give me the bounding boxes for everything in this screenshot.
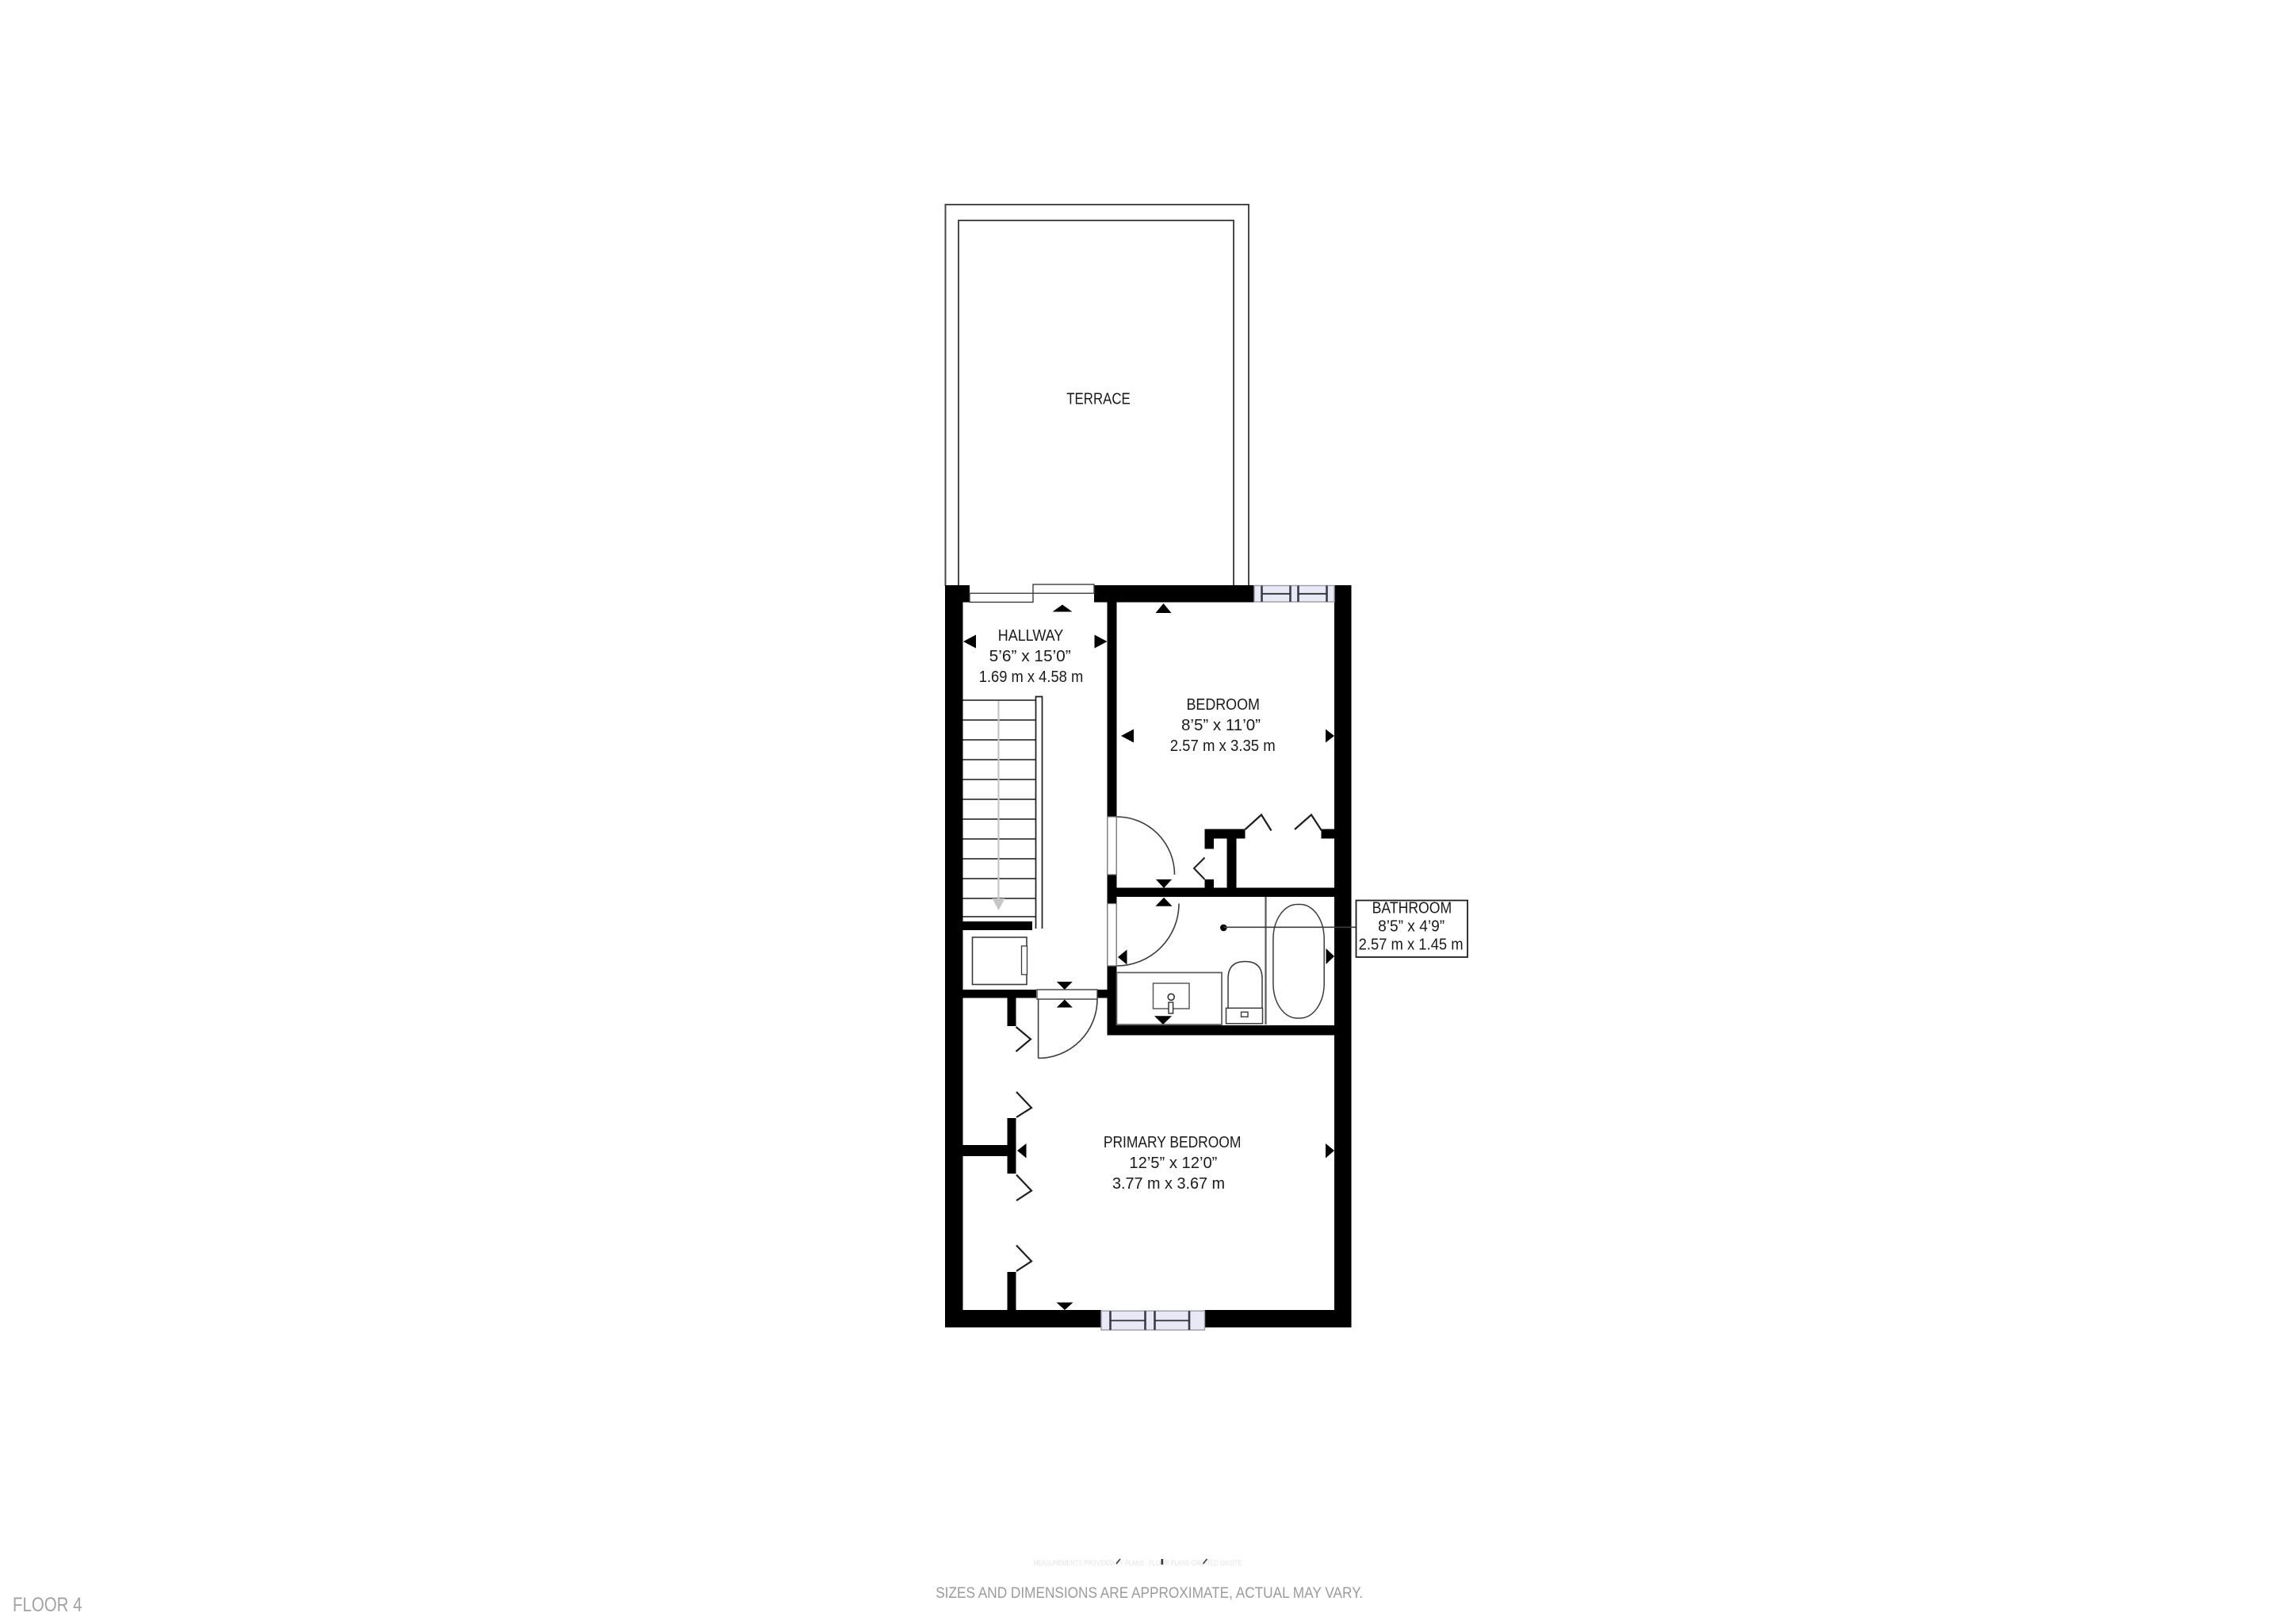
svg-text:2.57 m x 1.45 m: 2.57 m x 1.45 m	[1359, 936, 1464, 954]
svg-text:BEDROOM: BEDROOM	[1186, 696, 1260, 714]
svg-text:1.69 m x 4.58 m: 1.69 m x 4.58 m	[979, 668, 1084, 686]
svg-text:12’5” x 12’0”: 12’5” x 12’0”	[1129, 1155, 1217, 1172]
svg-text:3.77 m x 3.67 m: 3.77 m x 3.67 m	[1112, 1175, 1225, 1193]
svg-text:HALLWAY: HALLWAY	[998, 627, 1064, 645]
svg-text:TERRACE: TERRACE	[1066, 391, 1131, 408]
svg-text:PRIMARY BEDROOM: PRIMARY BEDROOM	[1104, 1134, 1242, 1151]
svg-text:MEASUREMENTS PROVIDED BY PLANS: MEASUREMENTS PROVIDED BY PLANS · FLOOR P…	[1033, 1559, 1242, 1568]
svg-text:SIZES AND DIMENSIONS ARE APPRO: SIZES AND DIMENSIONS ARE APPROXIMATE, AC…	[936, 1585, 1363, 1602]
svg-text:2.57 m x 3.35 m: 2.57 m x 3.35 m	[1170, 737, 1276, 755]
svg-text:8’5” x 11’0”: 8’5” x 11’0”	[1181, 717, 1261, 734]
svg-text:5’6” x 15’0”: 5’6” x 15’0”	[989, 648, 1071, 665]
svg-text:BATHROOM: BATHROOM	[1372, 900, 1452, 917]
svg-text:FLOOR 4: FLOOR 4	[13, 1594, 82, 1616]
svg-text:8’5” x 4’9”: 8’5” x 4’9”	[1378, 918, 1445, 936]
